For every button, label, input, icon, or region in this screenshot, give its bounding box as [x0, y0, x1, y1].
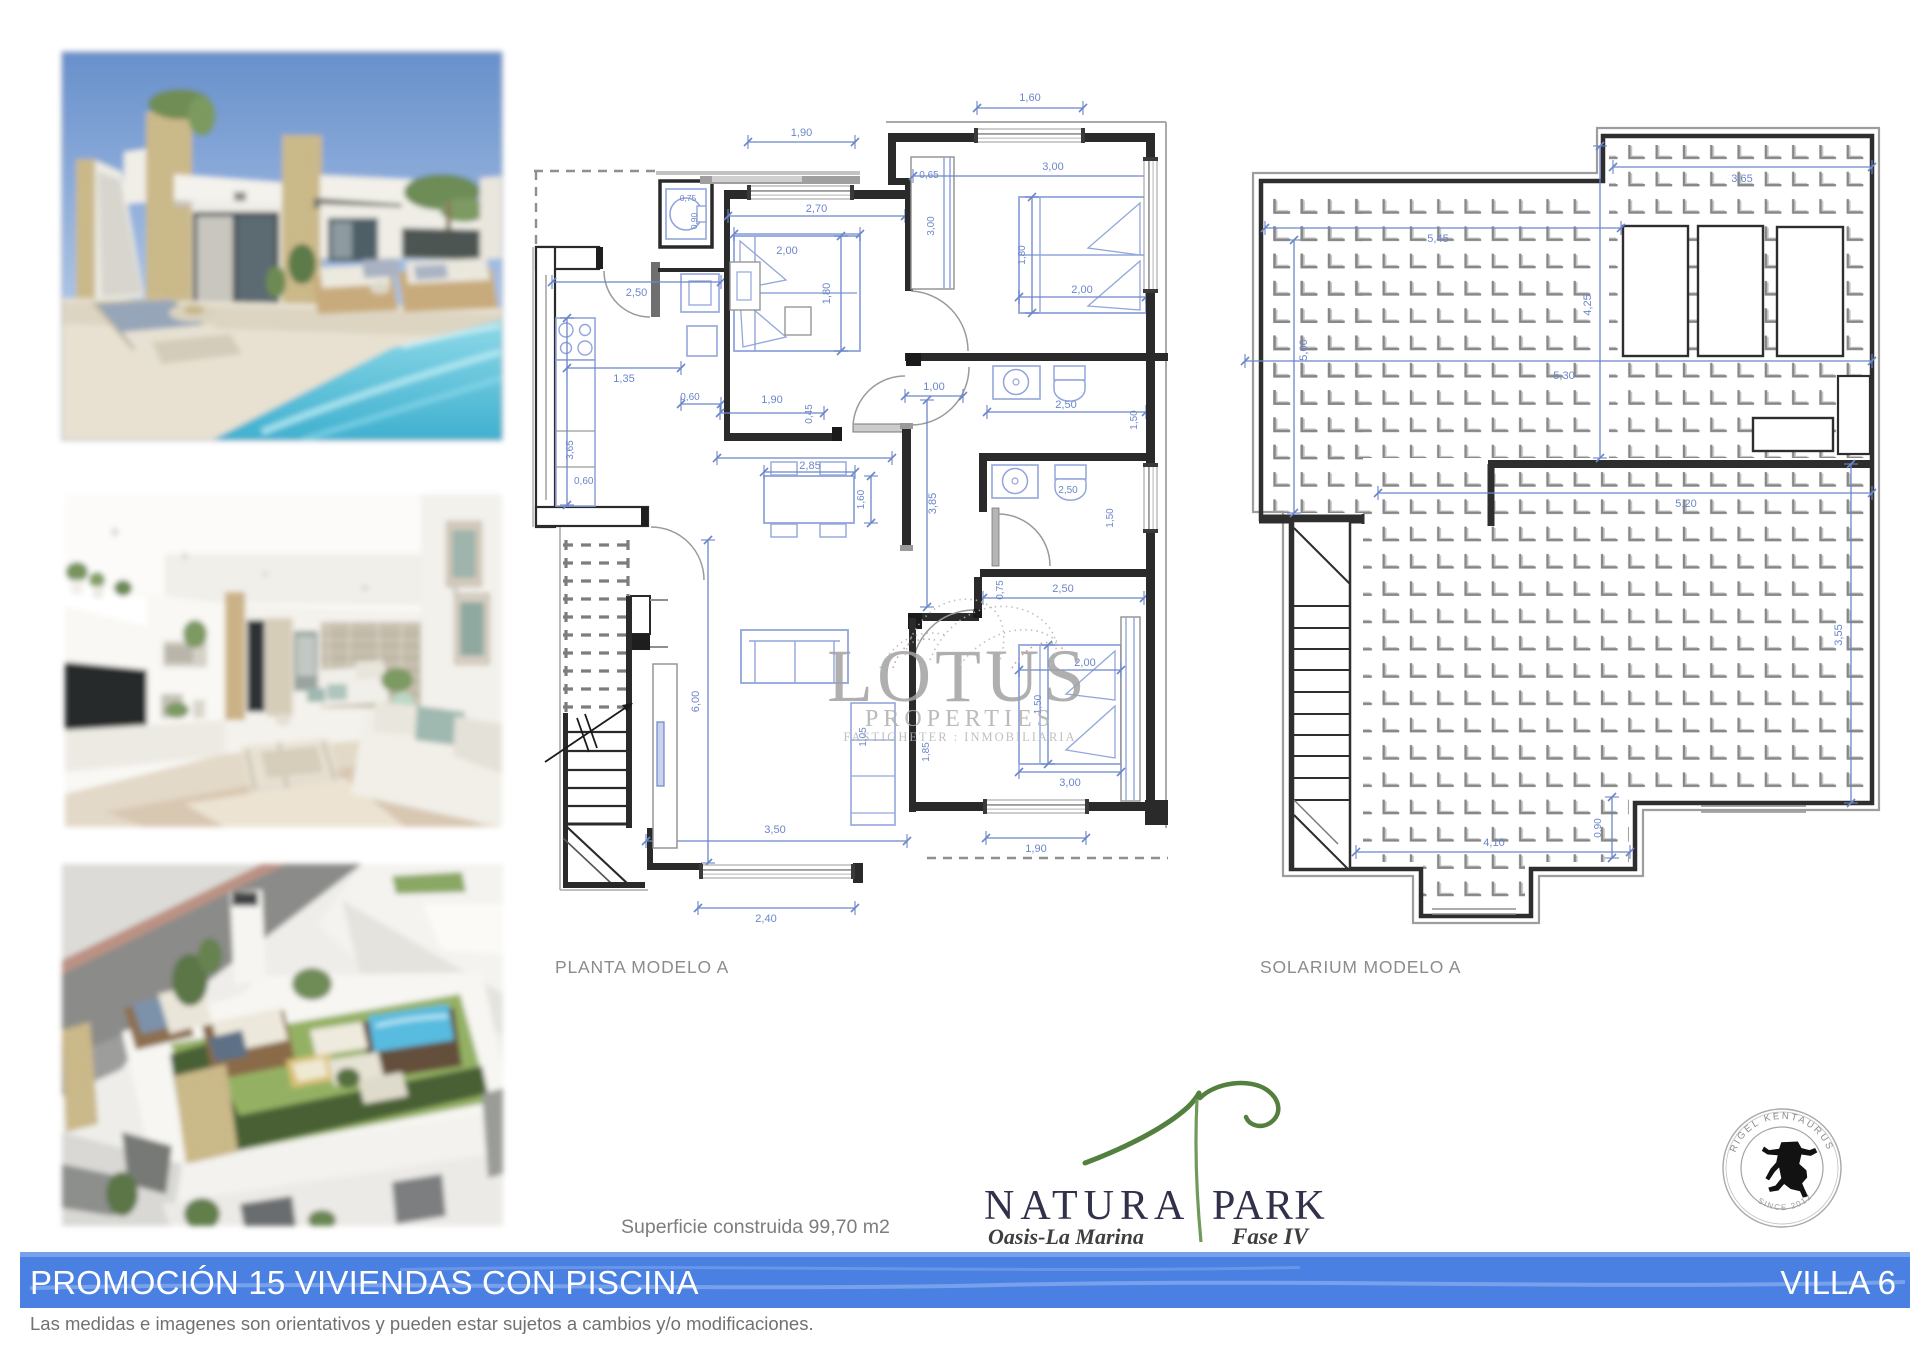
svg-text:2,50: 2,50 [1052, 583, 1073, 595]
svg-text:1,80: 1,80 [1017, 245, 1028, 265]
svg-text:1,50: 1,50 [1105, 508, 1116, 528]
svg-text:FASTIGHETER : INMOBILIARIA: FASTIGHETER : INMOBILIARIA [843, 730, 1076, 744]
svg-text:0,60: 0,60 [680, 392, 700, 403]
svg-text:2,50: 2,50 [1055, 399, 1076, 411]
svg-text:2,50: 2,50 [1058, 485, 1078, 496]
svg-text:1,90: 1,90 [791, 127, 812, 139]
svg-text:3,65: 3,65 [1731, 173, 1752, 185]
svg-text:1,90: 1,90 [761, 394, 782, 406]
svg-text:6,00: 6,00 [690, 691, 702, 712]
svg-text:3,50: 3,50 [764, 824, 785, 836]
svg-text:Fase IV: Fase IV [1231, 1224, 1310, 1249]
svg-text:0,75: 0,75 [680, 193, 697, 203]
svg-text:VILLA 6: VILLA 6 [1780, 1264, 1896, 1301]
svg-text:NATURA: NATURA [984, 1183, 1190, 1229]
svg-text:1,80: 1,80 [821, 283, 833, 304]
svg-text:PARK: PARK [1212, 1183, 1326, 1229]
svg-text:0,90: 0,90 [689, 212, 699, 229]
svg-text:3,55: 3,55 [1833, 624, 1845, 645]
svg-text:3,00: 3,00 [1059, 777, 1080, 789]
svg-text:3,00: 3,00 [1042, 161, 1063, 173]
svg-text:2,00: 2,00 [776, 245, 797, 257]
svg-text:Las medidas e imagenes son ori: Las medidas e imagenes son orientativos … [30, 1313, 814, 1334]
svg-text:3,00: 3,00 [926, 216, 937, 236]
svg-text:Superficie construida 99,70 m2: Superficie construida 99,70 m2 [621, 1216, 890, 1238]
svg-text:5,45: 5,45 [1427, 233, 1448, 245]
svg-text:1,60: 1,60 [856, 489, 867, 509]
svg-text:PROPERTIES: PROPERTIES [865, 706, 1055, 732]
svg-text:SOLARIUM MODELO A: SOLARIUM MODELO A [1260, 957, 1461, 977]
svg-text:PLANTA MODELO A: PLANTA MODELO A [555, 957, 729, 977]
svg-text:2,00: 2,00 [1071, 284, 1092, 296]
svg-text:5,30: 5,30 [1553, 370, 1574, 382]
svg-text:3,85: 3,85 [927, 493, 939, 514]
svg-text:1,90: 1,90 [1025, 843, 1046, 855]
svg-text:4,25: 4,25 [1582, 294, 1594, 315]
svg-text:0,90: 0,90 [1593, 818, 1604, 838]
svg-text:1,00: 1,00 [923, 381, 944, 393]
svg-text:Oasis-La Marina: Oasis-La Marina [988, 1224, 1144, 1249]
svg-text:1,35: 1,35 [613, 373, 634, 385]
svg-text:1,85: 1,85 [921, 742, 932, 762]
svg-text:0,45: 0,45 [804, 404, 815, 424]
svg-text:2,70: 2,70 [806, 203, 827, 215]
svg-text:0,75: 0,75 [995, 580, 1006, 600]
svg-text:5,20: 5,20 [1675, 498, 1696, 510]
svg-text:1,60: 1,60 [1019, 92, 1040, 104]
svg-text:1,50: 1,50 [1129, 410, 1140, 430]
svg-text:4,10: 4,10 [1483, 837, 1504, 849]
svg-text:0,60: 0,60 [574, 476, 594, 487]
svg-text:2,50: 2,50 [626, 287, 647, 299]
svg-text:2,40: 2,40 [755, 913, 776, 925]
svg-text:PROMOCIÓN 15 VIVIENDAS CON PIS: PROMOCIÓN 15 VIVIENDAS CON PISCINA [30, 1264, 699, 1301]
svg-text:3,65: 3,65 [565, 440, 576, 460]
svg-text:2,85: 2,85 [799, 460, 820, 472]
svg-text:5,00: 5,00 [1298, 339, 1310, 360]
